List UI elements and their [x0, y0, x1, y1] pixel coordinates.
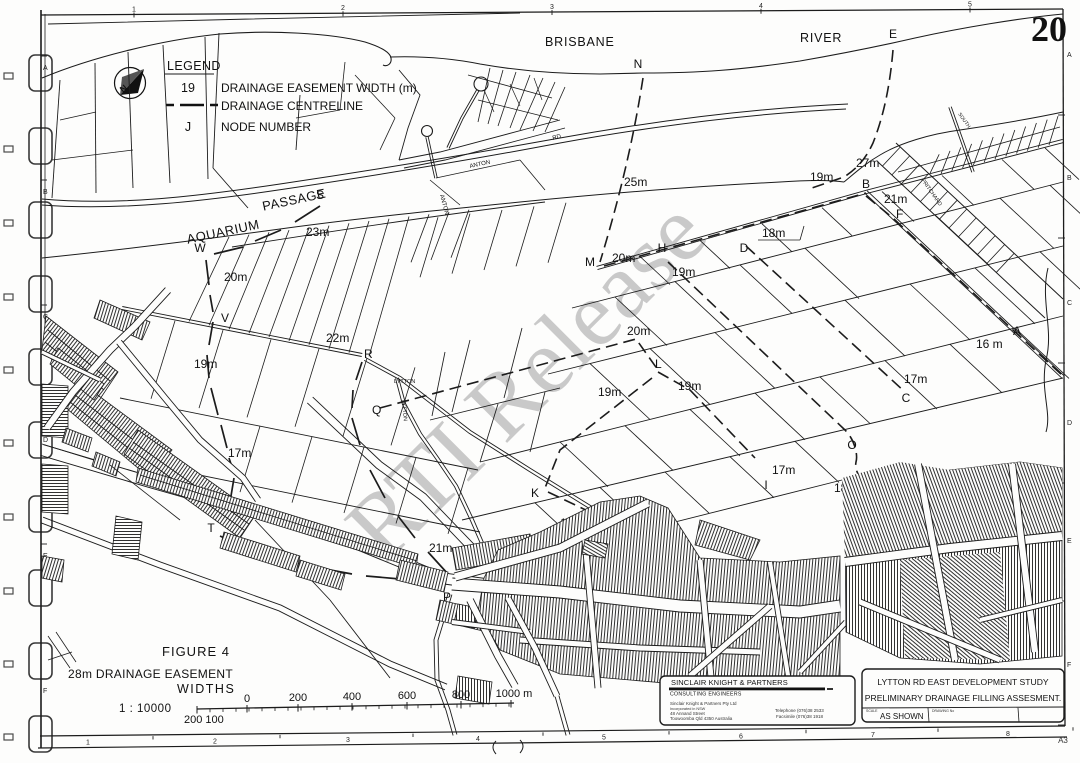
svg-text:1: 1 — [86, 740, 90, 747]
svg-text:F: F — [43, 688, 47, 695]
svg-text:19m: 19m — [810, 170, 833, 184]
svg-text:21m: 21m — [884, 192, 907, 206]
svg-text:8: 8 — [1006, 731, 1010, 738]
svg-text:2: 2 — [341, 5, 345, 12]
svg-text:Telephone (076)38 2533: Telephone (076)38 2533 — [775, 708, 824, 713]
svg-text:16 m: 16 m — [976, 337, 1003, 351]
svg-text:4: 4 — [759, 3, 763, 10]
svg-text:200 100: 200 100 — [184, 714, 224, 726]
svg-text:600: 600 — [398, 690, 416, 702]
svg-text:Q: Q — [372, 403, 381, 417]
svg-text:SCALE: SCALE — [866, 709, 878, 713]
svg-text:A: A — [43, 65, 48, 72]
svg-text:800: 800 — [452, 689, 470, 701]
svg-text:CONSULTING ENGINEERS: CONSULTING ENGINEERS — [670, 692, 742, 698]
svg-text:5: 5 — [968, 2, 972, 9]
svg-text:0: 0 — [244, 693, 250, 705]
svg-text:J: J — [185, 120, 191, 134]
svg-text:E: E — [1067, 538, 1072, 545]
svg-text:AS SHOWN: AS SHOWN — [880, 712, 924, 721]
svg-text:17m: 17m — [904, 372, 927, 386]
svg-text:E: E — [889, 27, 897, 41]
svg-text:1000 m: 1000 m — [496, 688, 533, 700]
svg-text:SINCLAIR KNIGHT & PARTNERS: SINCLAIR KNIGHT & PARTNERS — [671, 678, 788, 687]
svg-text:4: 4 — [476, 736, 480, 743]
svg-text:2: 2 — [213, 739, 217, 746]
svg-text:3: 3 — [346, 737, 350, 744]
svg-text:19m: 19m — [678, 379, 701, 393]
svg-text:200: 200 — [289, 692, 307, 704]
svg-text:A3: A3 — [1058, 736, 1068, 745]
svg-text:D: D — [43, 437, 48, 444]
svg-text:3: 3 — [550, 4, 554, 11]
svg-text:PRELIMINARY DRAINAGE FILLING A: PRELIMINARY DRAINAGE FILLING ASSESMENT. — [865, 693, 1061, 703]
svg-text:O: O — [847, 438, 856, 452]
svg-text:25m: 25m — [624, 175, 647, 189]
svg-text:22m: 22m — [326, 331, 349, 345]
svg-text:B: B — [43, 189, 48, 196]
svg-text:DRAINAGE CENTRELINE: DRAINAGE CENTRELINE — [221, 99, 363, 113]
svg-text:Sinclair Knight & Partners Pty: Sinclair Knight & Partners Pty Ltd — [670, 701, 737, 706]
svg-text:FIGURE 4: FIGURE 4 — [162, 644, 230, 659]
svg-text:Toowoomba Qld 4350 Australia: Toowoomba Qld 4350 Australia — [670, 716, 733, 721]
svg-text:Facsimile (076)38 1918: Facsimile (076)38 1918 — [776, 714, 824, 719]
svg-text:B: B — [1067, 175, 1072, 182]
svg-text:27m: 27m — [856, 156, 879, 170]
svg-text:18m: 18m — [762, 226, 785, 240]
svg-text:19m: 19m — [598, 385, 621, 399]
svg-text:17m: 17m — [772, 463, 795, 477]
svg-text:LEGEND: LEGEND — [167, 59, 221, 73]
svg-text:C: C — [902, 391, 911, 405]
svg-text:23m: 23m — [306, 225, 329, 239]
svg-text:20m: 20m — [224, 270, 247, 284]
svg-text:1: 1 — [132, 6, 136, 13]
svg-text:WIDTHS: WIDTHS — [177, 682, 235, 696]
svg-text:DRAWING No: DRAWING No — [932, 709, 954, 713]
svg-text:A: A — [1013, 324, 1021, 338]
svg-text:400: 400 — [343, 691, 361, 703]
svg-text:L: L — [655, 357, 662, 371]
svg-text:B: B — [862, 177, 870, 191]
svg-text:LYTTON: LYTTON — [394, 379, 415, 385]
svg-text:1 : 10000: 1 : 10000 — [119, 703, 171, 715]
svg-text:17m: 17m — [228, 446, 251, 460]
svg-text:H: H — [658, 241, 667, 255]
svg-text:A: A — [1067, 52, 1072, 59]
svg-text:DRAINAGE EASEMENT WIDTH (m): DRAINAGE EASEMENT WIDTH (m) — [221, 81, 417, 95]
svg-text:RIVER: RIVER — [800, 31, 842, 45]
svg-text:LYTTON RD EAST DEVELOPMENT STU: LYTTON RD EAST DEVELOPMENT STUDY — [877, 677, 1049, 687]
svg-text:BRISBANE: BRISBANE — [545, 35, 615, 49]
svg-text:M: M — [585, 255, 595, 269]
svg-text:5: 5 — [602, 735, 606, 742]
svg-text:C: C — [1067, 300, 1072, 307]
svg-text:21m: 21m — [429, 541, 452, 555]
svg-text:F: F — [896, 207, 903, 221]
svg-text:V: V — [221, 311, 229, 325]
svg-text:F: F — [1067, 662, 1071, 669]
svg-text:S: S — [316, 188, 324, 202]
svg-text:19: 19 — [181, 81, 195, 95]
svg-text:I: I — [764, 478, 767, 492]
svg-text:K: K — [531, 486, 539, 500]
svg-text:T: T — [207, 521, 215, 535]
svg-text:W: W — [194, 241, 206, 255]
svg-text:28m DRAINAGE EASEMENT: 28m DRAINAGE EASEMENT — [68, 667, 233, 681]
svg-text:20m: 20m — [627, 324, 650, 338]
svg-text:N: N — [634, 57, 643, 71]
svg-text:6: 6 — [739, 733, 743, 740]
svg-text:D: D — [1067, 420, 1072, 427]
svg-text:7: 7 — [871, 732, 875, 739]
